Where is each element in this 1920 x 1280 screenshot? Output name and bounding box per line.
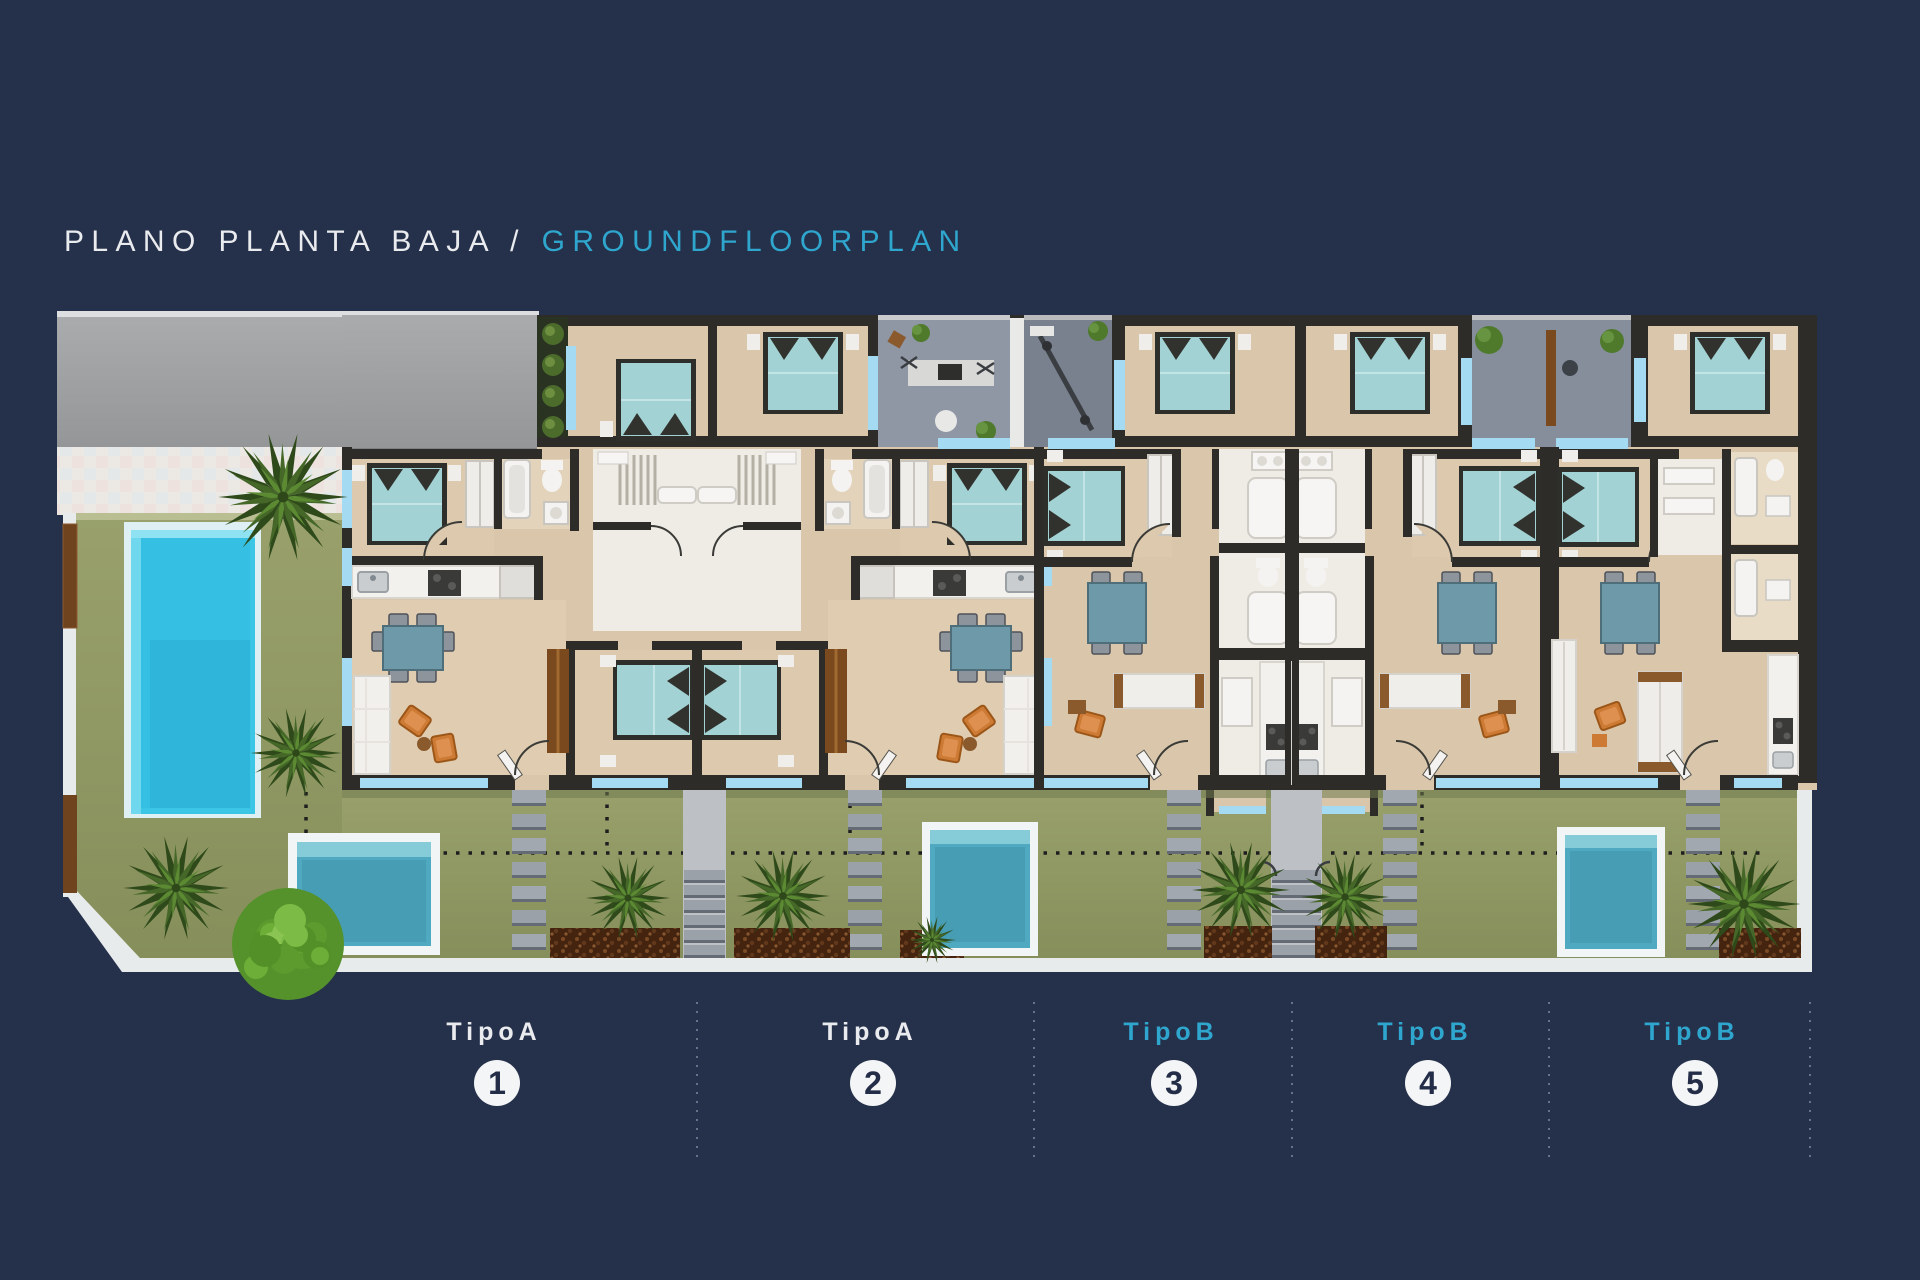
- svg-text:PLANO PLANTA BAJA / GROUNDFLO: PLANO PLANTA BAJA / GROUNDFLOORPLAN: [64, 225, 968, 258]
- svg-text:1: 1: [488, 1065, 506, 1101]
- svg-text:TipoB: TipoB: [1377, 1018, 1472, 1046]
- svg-text:TipoA: TipoA: [822, 1018, 917, 1046]
- svg-text:2: 2: [864, 1065, 882, 1101]
- svg-text:3: 3: [1165, 1065, 1183, 1101]
- svg-text:TipoB: TipoB: [1123, 1018, 1218, 1046]
- svg-text:TipoB: TipoB: [1644, 1018, 1739, 1046]
- svg-text:5: 5: [1686, 1065, 1704, 1101]
- svg-text:TipoA: TipoA: [446, 1018, 541, 1046]
- svg-text:4: 4: [1419, 1065, 1437, 1101]
